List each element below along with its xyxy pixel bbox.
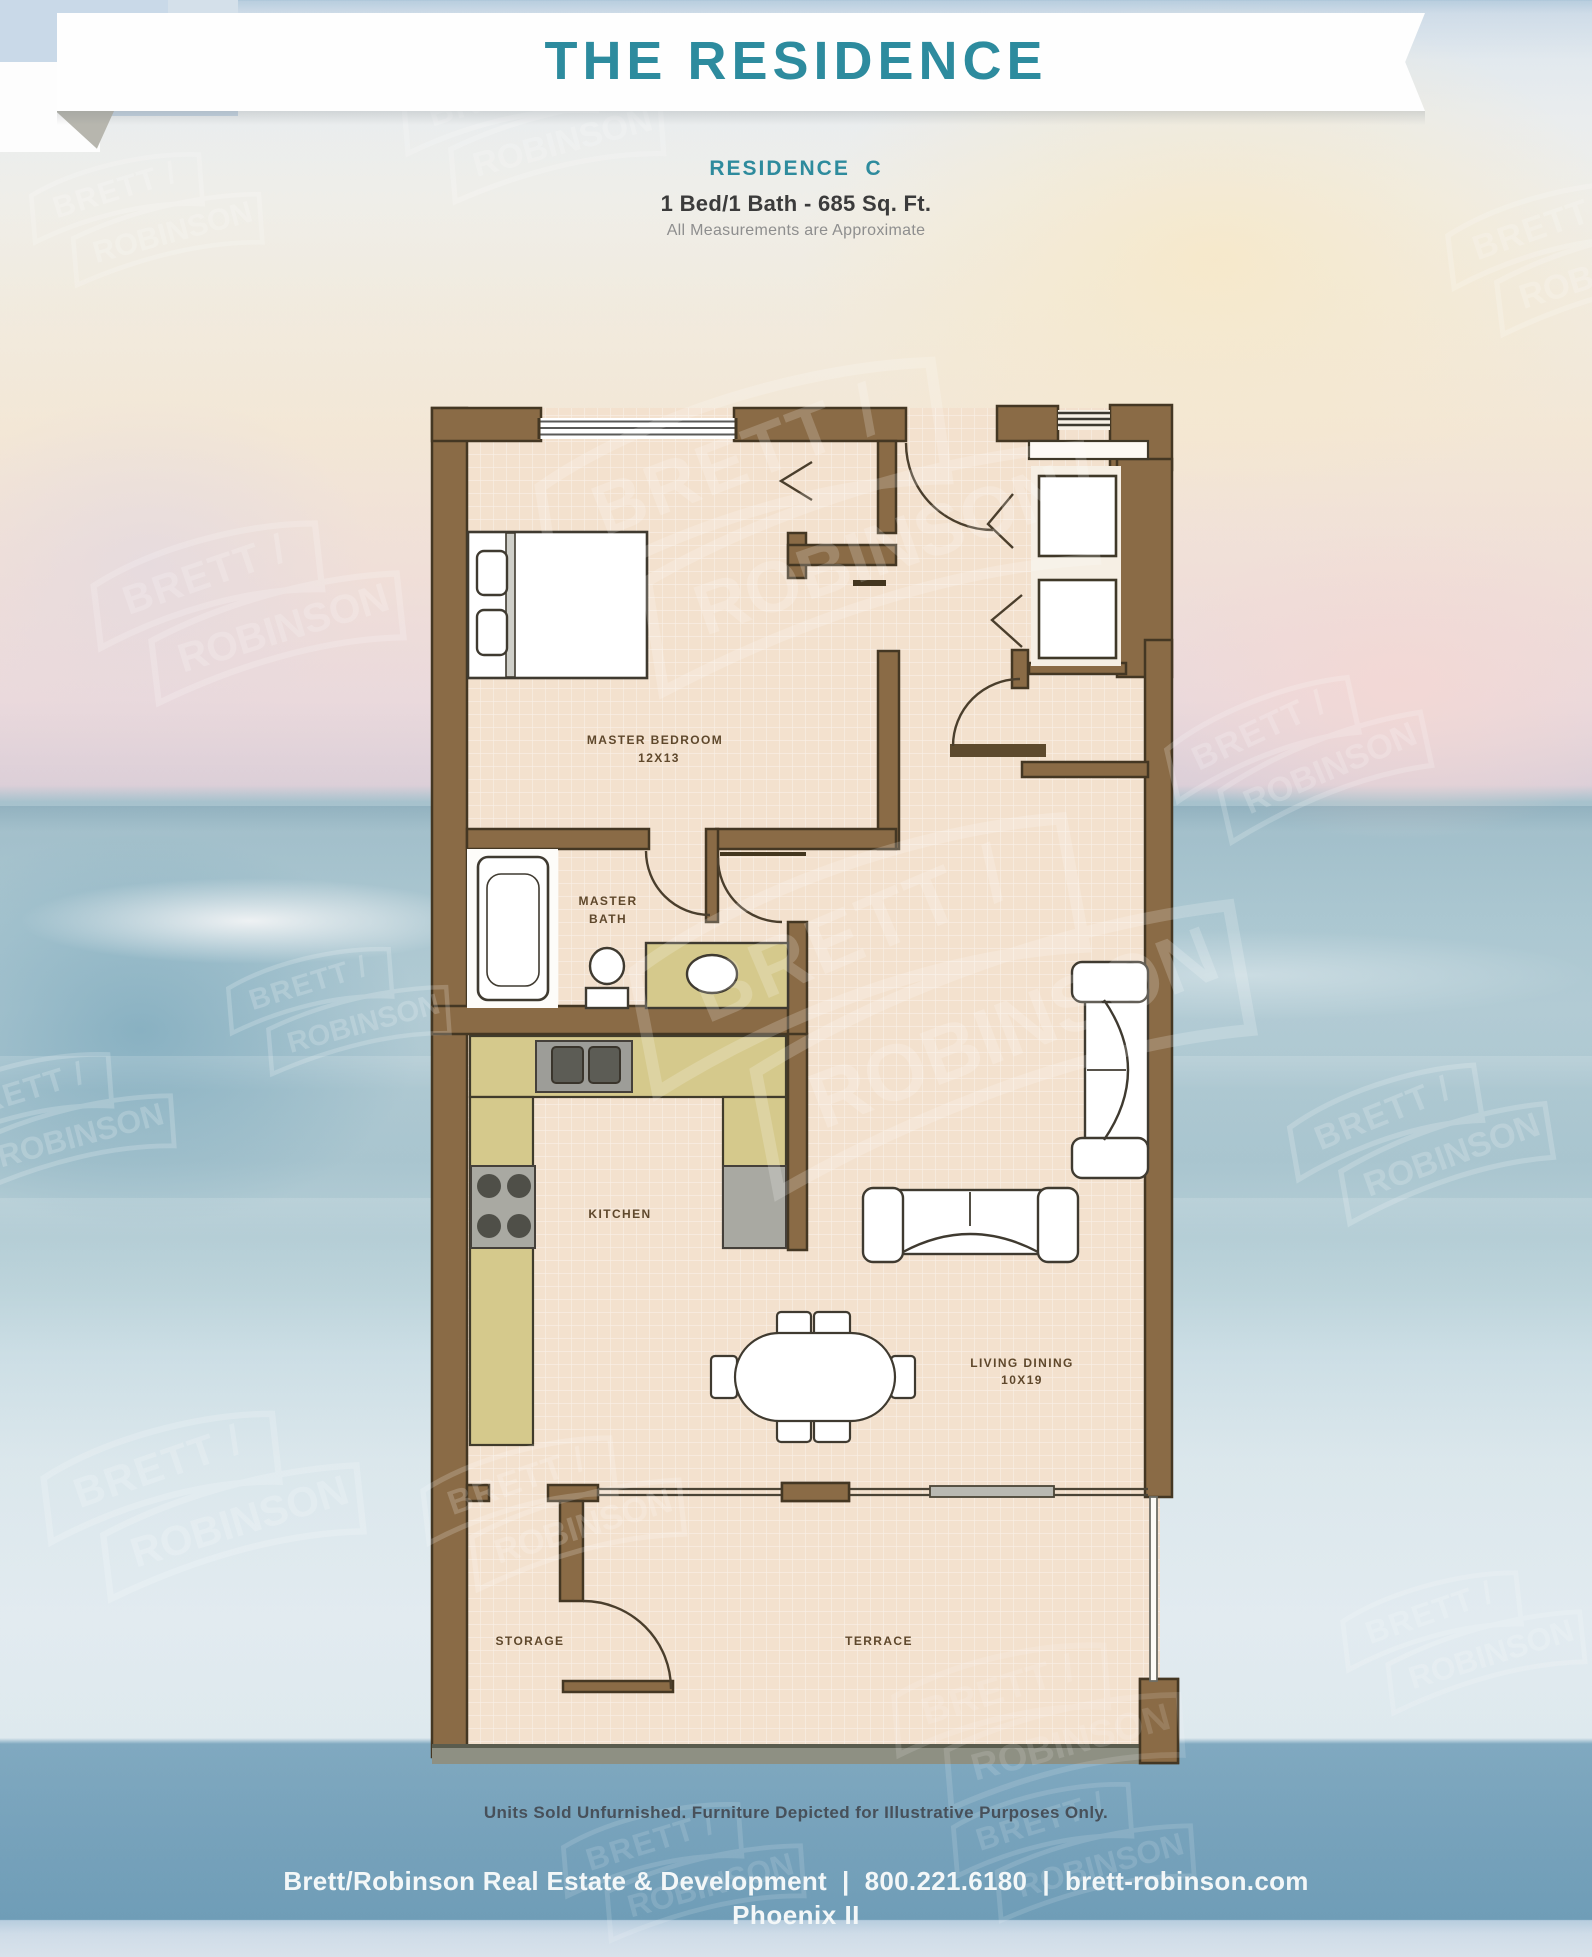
svg-text:MASTER BEDROOM: MASTER BEDROOM	[587, 733, 723, 747]
svg-text:10X19: 10X19	[1001, 1373, 1043, 1387]
svg-text:STORAGE: STORAGE	[496, 1634, 565, 1648]
svg-text:LIVING DINING: LIVING DINING	[970, 1356, 1074, 1370]
svg-text:12X13: 12X13	[638, 751, 680, 765]
svg-text:KITCHEN: KITCHEN	[588, 1207, 651, 1221]
svg-text:TERRACE: TERRACE	[845, 1634, 913, 1648]
